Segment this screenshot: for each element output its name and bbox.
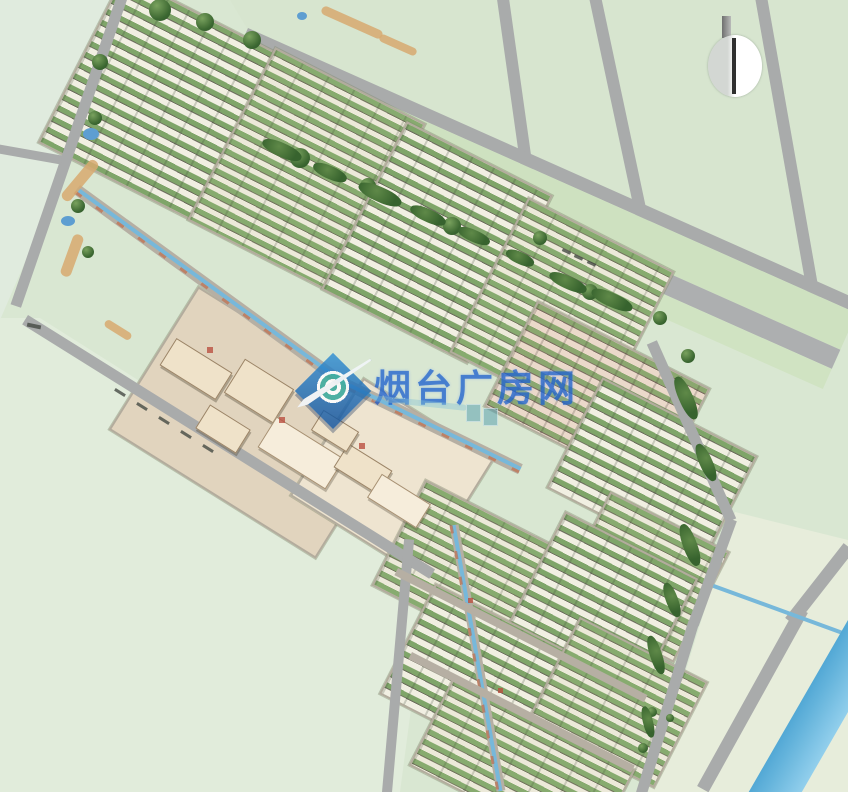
tree <box>196 13 214 31</box>
tree <box>92 54 108 70</box>
park-path <box>320 4 384 39</box>
road-label-mark <box>561 248 570 254</box>
park-path <box>378 33 418 57</box>
park-path <box>60 157 101 202</box>
roof-accent <box>468 598 473 603</box>
roof-accent <box>279 417 285 423</box>
pond <box>83 128 99 140</box>
tree-hedge <box>660 581 684 619</box>
tree <box>681 349 695 363</box>
road-label-mark <box>158 416 170 425</box>
pond <box>61 216 75 226</box>
commercial-building <box>367 474 431 528</box>
park-path <box>103 319 133 342</box>
road-label-mark <box>586 260 595 266</box>
road-label-mark <box>27 323 42 330</box>
pond <box>297 12 307 20</box>
tree <box>638 743 648 753</box>
tree <box>149 0 171 21</box>
watermark-stamp <box>483 408 498 426</box>
north-arrow-needle <box>732 38 736 94</box>
watermark-stamp <box>466 404 481 422</box>
roof-accent <box>359 443 365 449</box>
tree-hedge <box>504 246 536 269</box>
road-label-mark <box>180 430 192 439</box>
tree <box>82 246 94 258</box>
tree <box>533 231 547 245</box>
park-path <box>59 232 84 277</box>
tree-hedge <box>311 159 349 186</box>
commercial-building <box>224 359 294 424</box>
road-label-mark <box>114 388 126 397</box>
tree-hedge <box>456 224 492 249</box>
master-plan-map: 烟台广房网 <box>0 0 848 792</box>
tree <box>243 31 261 49</box>
tree <box>653 311 667 325</box>
road-label-mark <box>202 444 214 453</box>
tree-hedge <box>260 135 304 165</box>
tree-hedge <box>547 268 589 296</box>
road-label-mark <box>573 254 582 260</box>
tree <box>71 199 85 213</box>
roof-accent <box>498 688 503 693</box>
roof-accent <box>207 347 213 353</box>
tree-hedge <box>644 634 668 676</box>
tree <box>666 714 674 722</box>
tree <box>88 111 102 125</box>
tree-hedge <box>589 285 635 316</box>
road-label-mark <box>136 402 148 411</box>
watermark: 烟台广房网 <box>288 352 588 436</box>
tree-hedge <box>356 178 404 210</box>
tree-hedge <box>692 441 720 483</box>
tree-hedge <box>676 522 704 568</box>
tree-hedge <box>408 201 448 228</box>
commercial-building <box>160 338 233 400</box>
tree-hedge <box>670 374 701 422</box>
